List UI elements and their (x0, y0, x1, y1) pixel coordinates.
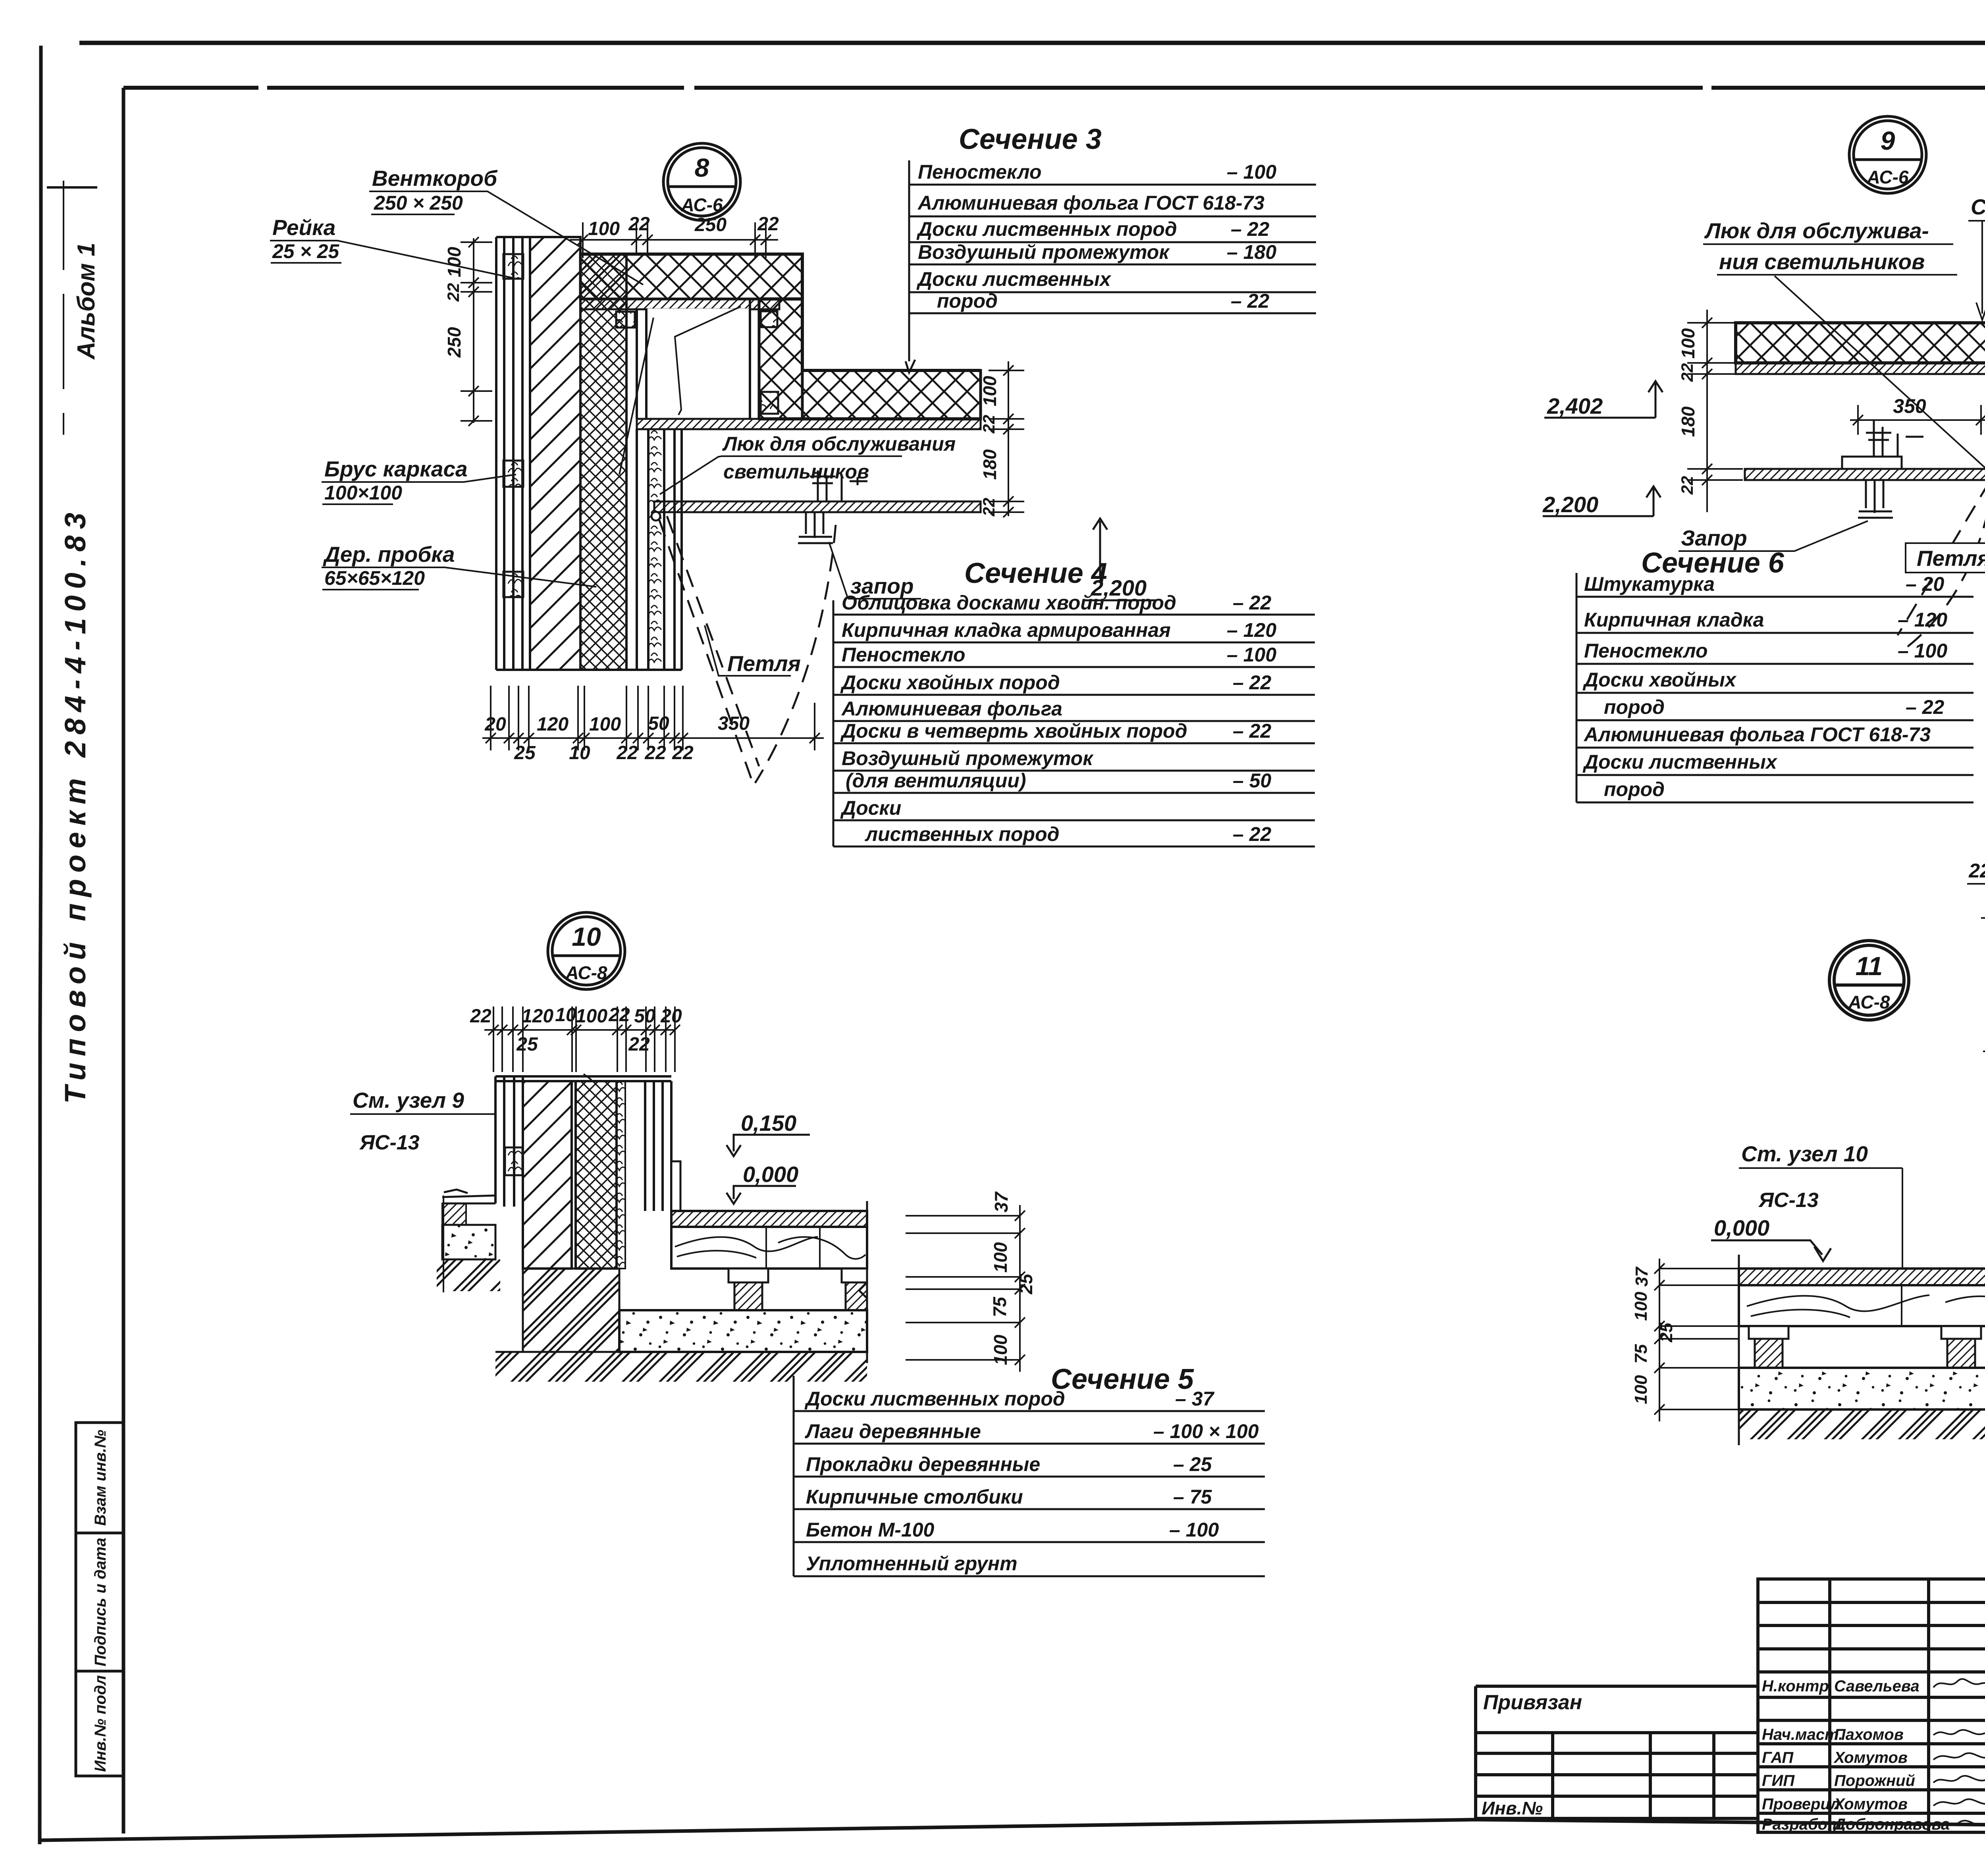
svg-text:100: 100 (990, 1242, 1011, 1273)
svg-text:Доски лиственных: Доски лиственных (1582, 751, 1778, 773)
svg-text:Воздушный промежуток: Воздушный промежуток (842, 747, 1094, 769)
svg-text:Пахомов: Пахомов (1834, 1726, 1904, 1743)
svg-text:75: 75 (1631, 1344, 1651, 1363)
svg-text:37: 37 (1632, 1266, 1652, 1286)
svg-text:100: 100 (1631, 1292, 1651, 1321)
svg-text:Сечение 5: Сечение 5 (1051, 1363, 1194, 1395)
svg-text:ГАП: ГАП (1762, 1749, 1794, 1766)
svg-text:Алюминиевая фольга: Алюминиевая фольга (841, 698, 1062, 720)
svg-text:См. узел 9: См. узел 9 (353, 1088, 464, 1112)
svg-text:10: 10 (555, 1005, 576, 1026)
svg-text:Люк для обслужива-: Люк для обслужива- (1704, 218, 1929, 243)
svg-text:250 × 250: 250 × 250 (374, 192, 463, 214)
svg-text:Инв.№ подл: Инв.№ подл (92, 1675, 109, 1772)
svg-text:Типовой проект 284-4-100.83: Типовой проект 284-4-100.83 (59, 506, 92, 1104)
svg-text:– 100: – 100 (1227, 644, 1276, 666)
svg-text:100×100: 100×100 (324, 482, 402, 504)
svg-text:100: 100 (444, 247, 464, 277)
svg-text:Рейка: Рейка (272, 215, 335, 240)
svg-text:100: 100 (1631, 1375, 1651, 1404)
svg-text:Доски лиственных: Доски лиственных (916, 268, 1112, 290)
svg-text:8: 8 (695, 153, 709, 182)
svg-text:– 100 × 100: – 100 × 100 (1153, 1420, 1259, 1442)
svg-text:светильников: светильников (723, 461, 869, 483)
svg-text:Доски лиственных пород: Доски лиственных пород (916, 218, 1177, 240)
svg-text:11: 11 (1856, 951, 1883, 981)
svg-text:Бетон М-100: Бетон М-100 (806, 1519, 935, 1541)
svg-text:25: 25 (516, 1034, 538, 1055)
svg-text:Лаги деревянные: Лаги деревянные (805, 1420, 981, 1442)
svg-text:Хомутов: Хомутов (1833, 1795, 1908, 1813)
svg-text:ЯС-13: ЯС-13 (359, 1131, 420, 1154)
svg-text:20: 20 (660, 1006, 682, 1027)
svg-text:22: 22 (757, 214, 779, 235)
svg-text:22: 22 (979, 415, 998, 434)
svg-text:– 120: – 120 (1227, 619, 1276, 641)
svg-text:Прокладки деревянные: Прокладки деревянные (806, 1453, 1040, 1475)
svg-text:Облицовка досками хвойн. пород: Облицовка досками хвойн. пород (842, 592, 1176, 614)
svg-text:– 100: – 100 (1898, 640, 1947, 662)
svg-text:0,000: 0,000 (743, 1162, 798, 1187)
svg-text:10: 10 (572, 922, 601, 951)
svg-text:– 22: – 22 (1231, 218, 1270, 240)
svg-text:– 22: – 22 (1231, 290, 1270, 312)
svg-text:Люк для обслуживания: Люк для обслуживания (722, 433, 956, 455)
svg-text:лиственных пород: лиственных пород (865, 823, 1060, 845)
svg-text:Алюминиевая фольга ГОСТ 618-73: Алюминиевая фольга ГОСТ 618-73 (917, 192, 1264, 214)
svg-text:Петля: Петля (727, 651, 801, 676)
svg-text:Кирпичная кладка: Кирпичная кладка (1584, 609, 1764, 631)
svg-text:АС-6: АС-6 (680, 195, 723, 215)
svg-text:22: 22 (628, 1034, 650, 1055)
svg-text:Петля: Петля (1917, 546, 1985, 571)
svg-text:100: 100 (588, 218, 620, 239)
svg-text:Дер. пробка: Дер. пробка (323, 542, 455, 567)
svg-text:пород: пород (1604, 778, 1665, 800)
svg-text:Доски лиственных пород: Доски лиственных пород (804, 1388, 1065, 1410)
svg-text:См. узел 8: См. узел 8 (1971, 195, 1985, 219)
svg-text:пород: пород (1604, 696, 1665, 718)
svg-text:Инв.№: Инв.№ (1482, 1798, 1543, 1818)
svg-text:65×65×120: 65×65×120 (324, 567, 425, 589)
svg-text:25 × 25: 25 × 25 (272, 240, 339, 262)
svg-text:22: 22 (1678, 476, 1696, 495)
svg-text:– 22: – 22 (1233, 671, 1272, 694)
svg-text:АС-8: АС-8 (1848, 992, 1890, 1012)
svg-text:Венткороб: Венткороб (372, 166, 498, 191)
svg-text:Сечение 3: Сечение 3 (959, 123, 1102, 155)
svg-text:Пеностекло: Пеностекло (1584, 640, 1708, 662)
svg-text:Добронравова: Добронравова (1833, 1816, 1950, 1833)
svg-text:Порожний: Порожний (1834, 1772, 1915, 1789)
svg-text:75: 75 (989, 1296, 1010, 1317)
svg-text:Ст. узел 10: Ст. узел 10 (1741, 1141, 1868, 1166)
svg-text:Разработ.: Разработ. (1762, 1816, 1846, 1833)
svg-text:250: 250 (694, 214, 727, 235)
svg-text:50: 50 (634, 1006, 655, 1027)
svg-text:250: 250 (444, 327, 464, 358)
svg-text:100: 100 (576, 1006, 607, 1027)
svg-text:– 37: – 37 (1175, 1388, 1215, 1410)
svg-text:– 100: – 100 (1169, 1519, 1219, 1541)
svg-text:25: 25 (1657, 1323, 1676, 1342)
svg-text:– 75: – 75 (1173, 1486, 1212, 1508)
svg-text:50: 50 (648, 713, 669, 734)
svg-text:Подпись и дата: Подпись и дата (92, 1538, 109, 1666)
svg-text:Взам инв.№: Взам инв.№ (92, 1430, 109, 1526)
svg-text:Уплотненный грунт: Уплотненный грунт (806, 1552, 1018, 1575)
svg-text:10: 10 (569, 742, 590, 764)
svg-text:– 180: – 180 (1227, 241, 1276, 263)
svg-text:Савельева: Савельева (1834, 1677, 1919, 1695)
svg-text:ЯС-13: ЯС-13 (1758, 1189, 1819, 1212)
svg-text:22: 22 (470, 1006, 491, 1027)
svg-text:20: 20 (484, 714, 506, 735)
svg-text:ГИП: ГИП (1762, 1772, 1795, 1789)
svg-text:– 22: – 22 (1233, 823, 1272, 845)
svg-text:Доски: Доски (840, 797, 901, 819)
svg-text:Пеностекло: Пеностекло (842, 644, 966, 666)
svg-text:Хомутов: Хомутов (1833, 1749, 1908, 1766)
svg-text:Кирпичная кладка армированная: Кирпичная кладка армированная (842, 619, 1171, 641)
svg-text:– 25: – 25 (1173, 1453, 1212, 1475)
svg-text:Воздушный промежуток: Воздушный промежуток (918, 241, 1170, 263)
svg-text:Сечение 4: Сечение 4 (964, 557, 1107, 589)
svg-text:22: 22 (672, 742, 694, 764)
svg-text:– 120: – 120 (1898, 609, 1947, 631)
svg-text:Доски хвойных: Доски хвойных (1582, 669, 1737, 691)
svg-text:25: 25 (514, 742, 536, 764)
svg-text:22: 22 (628, 214, 650, 235)
svg-text:– 22: – 22 (1906, 696, 1945, 718)
svg-text:– 22: – 22 (1233, 592, 1272, 614)
svg-text:ния светильников: ния светильников (1719, 249, 1925, 274)
svg-text:Н.контр: Н.контр (1762, 1677, 1829, 1695)
svg-text:100: 100 (1678, 328, 1698, 359)
svg-text:100: 100 (979, 376, 1000, 406)
svg-text:Доски хвойных пород: Доски хвойных пород (840, 671, 1060, 694)
svg-text:0,000: 0,000 (1714, 1215, 1769, 1240)
svg-text:37: 37 (991, 1191, 1012, 1213)
svg-text:– 100: – 100 (1227, 161, 1276, 183)
svg-text:22: 22 (608, 1005, 630, 1026)
svg-text:22: 22 (644, 742, 666, 764)
svg-text:Пеностекло: Пеностекло (918, 161, 1042, 183)
svg-text:Нач.маст.: Нач.маст. (1762, 1726, 1843, 1743)
svg-text:Штукатурка: Штукатурка (1584, 573, 1715, 595)
svg-text:– 20: – 20 (1906, 573, 1945, 595)
svg-text:Алюминиевая фольга ГОСТ 618-73: Алюминиевая фольга ГОСТ 618-73 (1583, 723, 1931, 746)
svg-text:АС-8: АС-8 (565, 962, 607, 983)
svg-text:22: 22 (1678, 363, 1696, 382)
svg-text:Запор: Запор (1681, 526, 1747, 550)
svg-text:9: 9 (1881, 126, 1895, 155)
svg-text:22: 22 (1968, 860, 1985, 882)
svg-text:120: 120 (537, 714, 569, 735)
svg-text:Альбом 1: Альбом 1 (73, 243, 100, 360)
svg-text:АС-6: АС-6 (1866, 167, 1908, 187)
svg-text:Проверил: Проверил (1762, 1795, 1840, 1813)
svg-text:350: 350 (718, 713, 750, 734)
svg-text:120: 120 (522, 1006, 553, 1027)
svg-text:0,150: 0,150 (741, 1111, 796, 1136)
svg-text:180: 180 (979, 449, 1000, 480)
svg-text:Привязан: Привязан (1483, 1691, 1582, 1714)
svg-text:– 50: – 50 (1233, 769, 1272, 792)
svg-text:180: 180 (1678, 406, 1698, 437)
svg-text:(для вентиляции): (для вентиляции) (846, 769, 1026, 792)
svg-text:22: 22 (979, 498, 998, 517)
svg-text:22: 22 (616, 742, 638, 764)
svg-text:25: 25 (1016, 1273, 1036, 1295)
svg-text:Кирпичные столбики: Кирпичные столбики (806, 1486, 1023, 1508)
svg-text:2,200: 2,200 (1542, 492, 1598, 517)
svg-text:пород: пород (937, 290, 998, 312)
svg-text:100: 100 (990, 1334, 1011, 1365)
svg-text:Брус каркаса: Брус каркаса (324, 457, 468, 481)
svg-text:22: 22 (444, 283, 463, 302)
svg-text:– 22: – 22 (1233, 720, 1272, 742)
svg-text:2,402: 2,402 (1547, 393, 1603, 418)
svg-text:Доски в четверть хвойных пород: Доски в четверть хвойных пород (840, 720, 1187, 742)
svg-text:100: 100 (589, 714, 621, 735)
